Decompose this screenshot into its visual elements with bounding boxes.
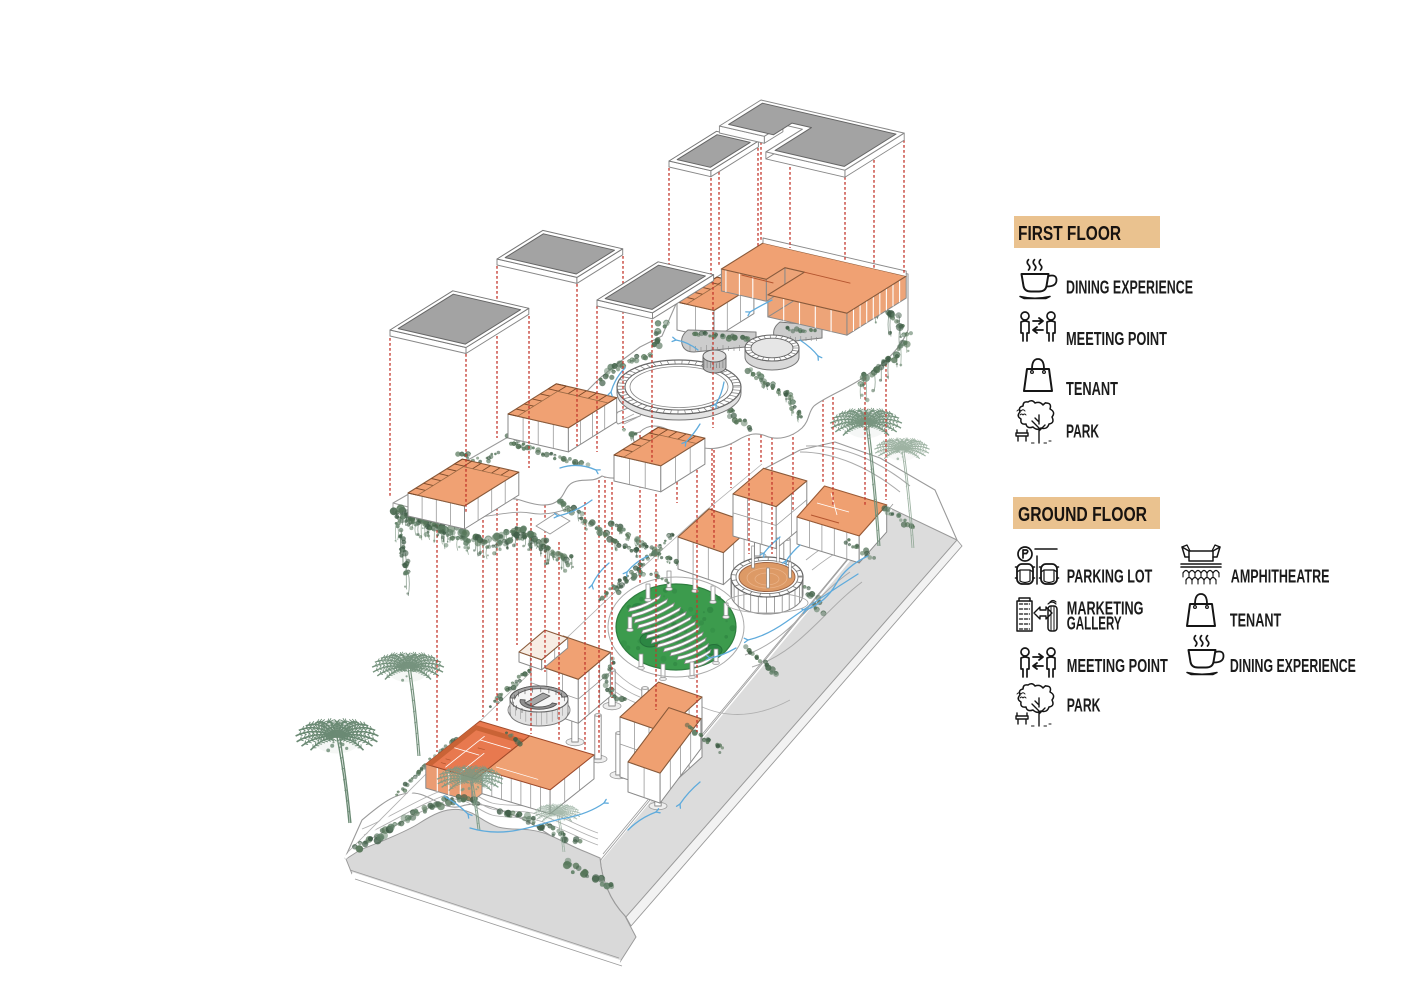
svg-text:GROUND FLOOR: GROUND FLOOR	[1018, 504, 1147, 526]
svg-text:AMPHITHEATRE: AMPHITHEATRE	[1231, 567, 1330, 587]
svg-text:FIRST FLOOR: FIRST FLOOR	[1018, 223, 1121, 245]
svg-text:GALLERY: GALLERY	[1067, 613, 1122, 633]
svg-text:TENANT: TENANT	[1066, 379, 1118, 399]
svg-text:MEETING POINT: MEETING POINT	[1066, 329, 1167, 349]
svg-text:PARKING LOT: PARKING LOT	[1067, 567, 1153, 587]
svg-text:MEETING POINT: MEETING POINT	[1067, 656, 1168, 676]
svg-text:PARK: PARK	[1067, 695, 1101, 715]
svg-text:DINING EXPERIENCE: DINING EXPERIENCE	[1066, 278, 1193, 298]
svg-text:DINING EXPERIENCE: DINING EXPERIENCE	[1230, 656, 1356, 676]
svg-text:PARK: PARK	[1066, 421, 1099, 441]
svg-text:TENANT: TENANT	[1230, 610, 1281, 630]
